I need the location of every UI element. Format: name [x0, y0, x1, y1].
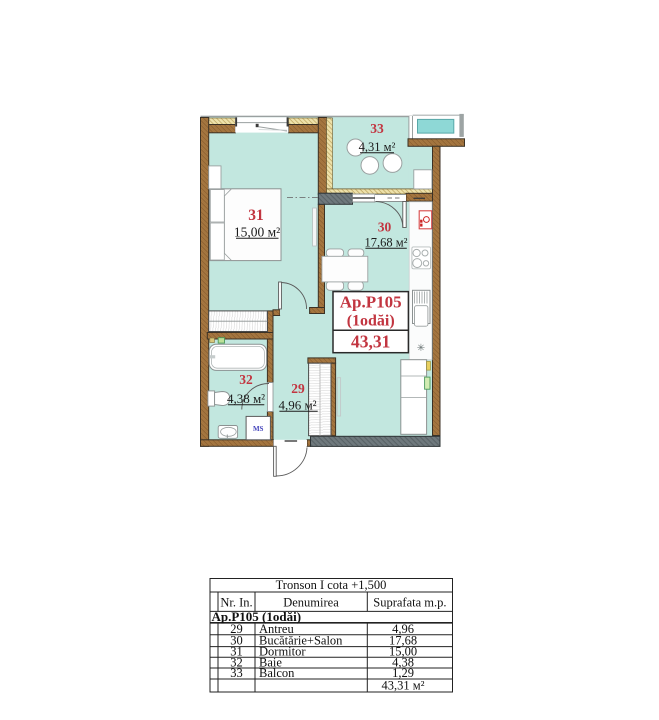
svg-text:4,38 м²: 4,38 м² — [227, 391, 265, 406]
svg-text:✳: ✳ — [417, 343, 425, 354]
svg-text:33: 33 — [230, 666, 243, 680]
svg-text:(1odăi): (1odăi) — [347, 313, 395, 330]
svg-text:43,31 м²: 43,31 м² — [382, 679, 425, 693]
svg-text:30: 30 — [378, 220, 392, 235]
svg-text:32: 32 — [239, 372, 253, 387]
svg-text:4,31 м²: 4,31 м² — [359, 140, 396, 154]
svg-text:Suprafata m.p.: Suprafata m.p. — [373, 596, 446, 610]
svg-text:MS: MS — [253, 425, 264, 433]
svg-text:31: 31 — [248, 207, 264, 224]
svg-text:33: 33 — [370, 121, 384, 136]
svg-text:Ap.P105: Ap.P105 — [340, 293, 402, 312]
svg-text:17,68 м²: 17,68 м² — [365, 236, 408, 250]
svg-text:15,00 м²: 15,00 м² — [234, 225, 280, 240]
svg-text:Nr. In.: Nr. In. — [220, 596, 252, 610]
svg-text:29: 29 — [291, 381, 305, 396]
svg-text:Balcon: Balcon — [259, 666, 295, 680]
svg-text:4,96 м²: 4,96 м² — [278, 398, 316, 413]
svg-text:Tronson I cota +1,500: Tronson I cota +1,500 — [276, 578, 387, 592]
svg-text:43,31: 43,31 — [351, 332, 390, 352]
svg-text:Denumirea: Denumirea — [283, 596, 339, 610]
